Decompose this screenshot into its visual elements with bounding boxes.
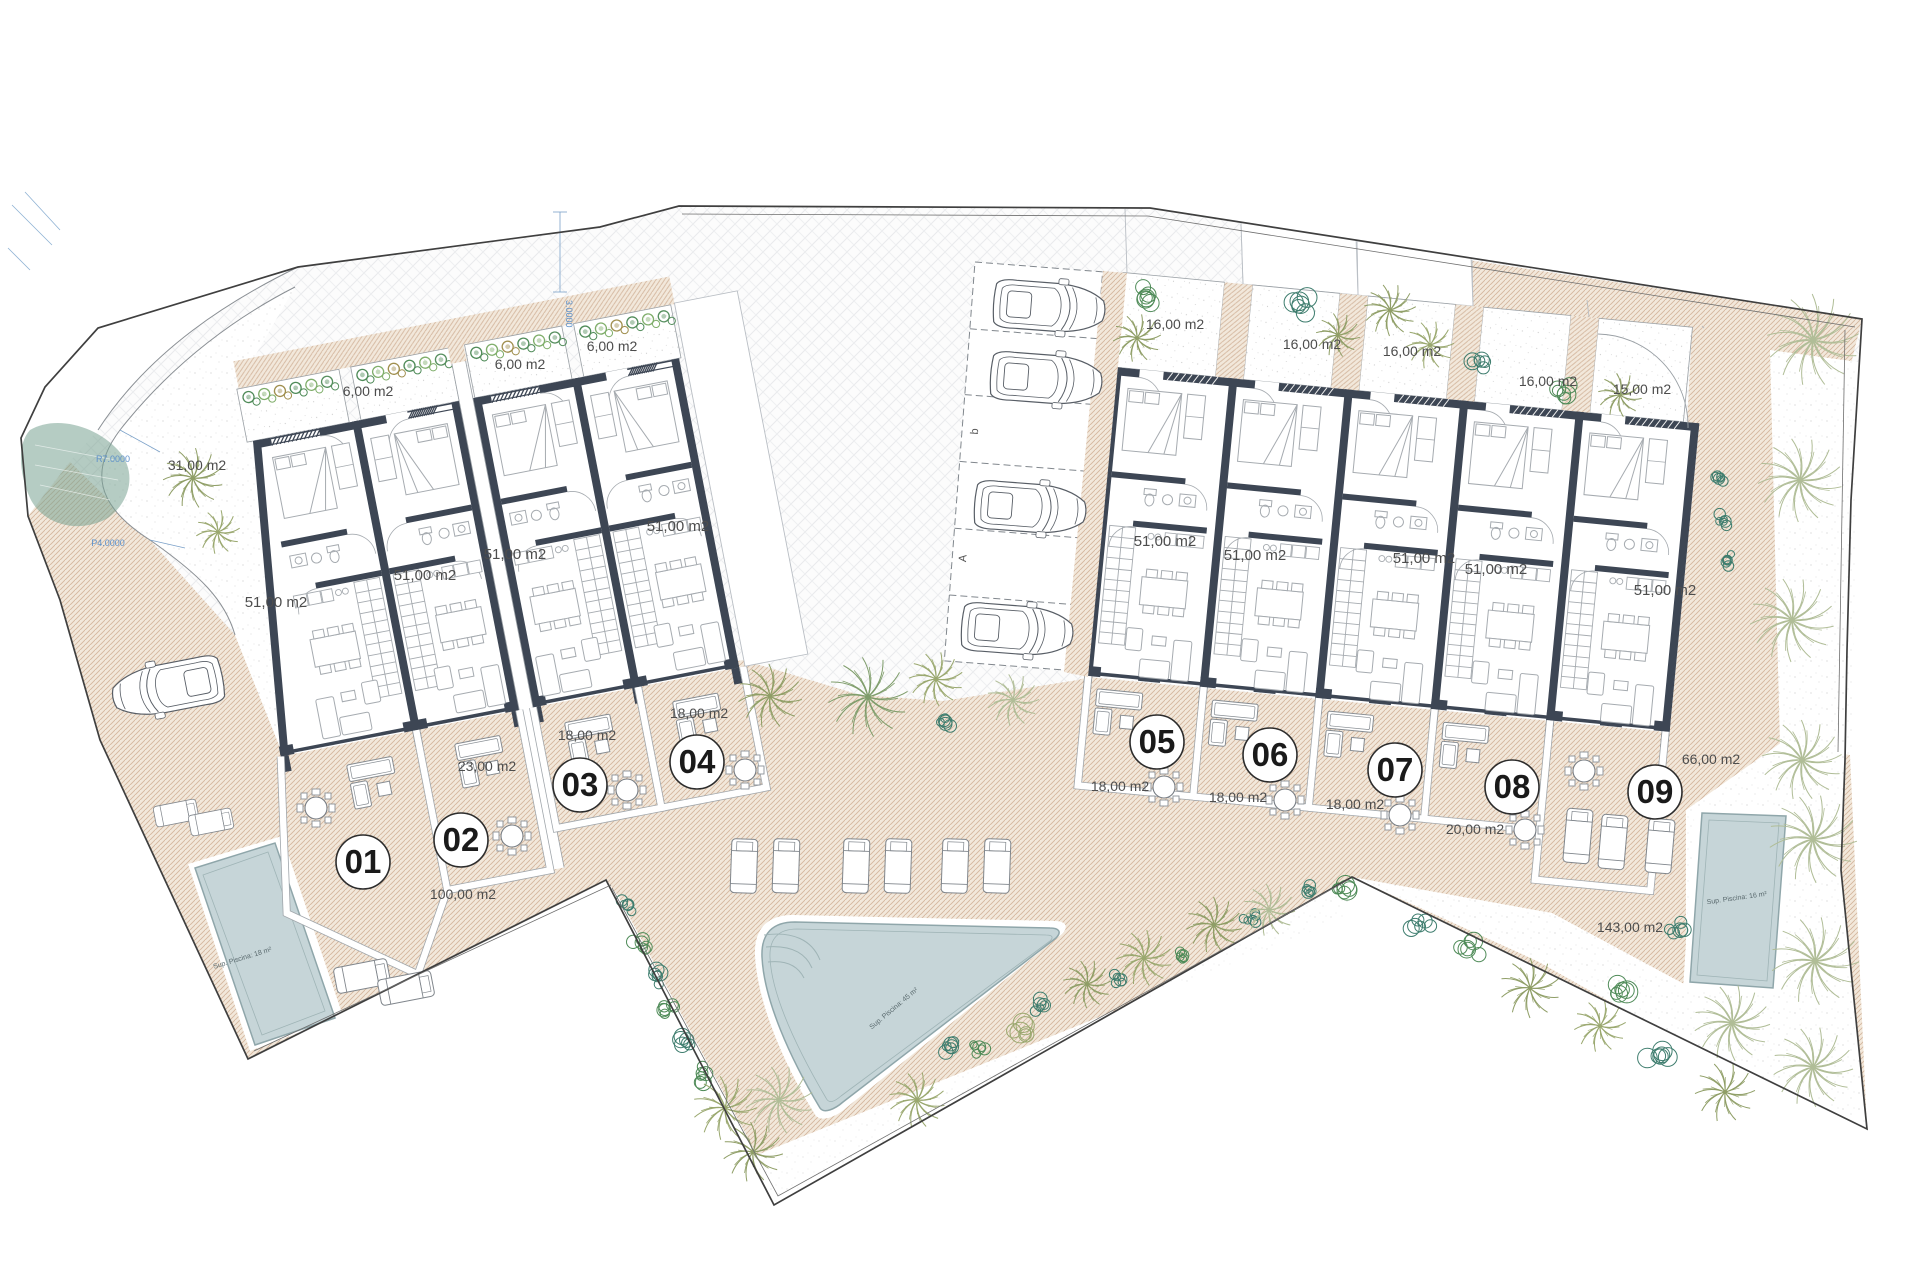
svg-text:51,00 m2: 51,00 m2	[1393, 550, 1456, 567]
svg-text:01: 01	[345, 843, 382, 880]
svg-text:51,00 m2: 51,00 m2	[484, 546, 547, 563]
svg-text:04: 04	[679, 743, 716, 780]
svg-text:16,00 m2: 16,00 m2	[1519, 373, 1578, 389]
svg-text:6,00 m2: 6,00 m2	[495, 356, 546, 372]
svg-text:09: 09	[1637, 773, 1674, 810]
svg-text:15,00 m2: 15,00 m2	[1613, 381, 1672, 397]
svg-text:07: 07	[1377, 751, 1414, 788]
svg-text:R7.0000: R7.0000	[96, 454, 130, 464]
svg-text:51,00 m2: 51,00 m2	[394, 567, 457, 584]
svg-text:66,00 m2: 66,00 m2	[1682, 751, 1741, 767]
svg-text:06: 06	[1252, 736, 1289, 773]
svg-text:16,00 m2: 16,00 m2	[1383, 343, 1442, 359]
svg-text:16,00 m2: 16,00 m2	[1283, 336, 1342, 352]
svg-text:18,00 m2: 18,00 m2	[1091, 778, 1150, 794]
svg-text:05: 05	[1139, 723, 1176, 760]
svg-text:51,00 m2: 51,00 m2	[647, 518, 710, 535]
svg-text:51,00 m2: 51,00 m2	[1134, 533, 1197, 550]
svg-text:20,00 m2: 20,00 m2	[1446, 821, 1505, 837]
svg-text:31,00 m2: 31,00 m2	[168, 457, 227, 473]
svg-text:51,00 m2: 51,00 m2	[1224, 547, 1287, 564]
svg-text:b: b	[969, 428, 981, 435]
svg-text:6,00 m2: 6,00 m2	[343, 383, 394, 399]
svg-text:16,00 m2: 16,00 m2	[1146, 316, 1205, 332]
svg-text:18,00 m2: 18,00 m2	[670, 705, 729, 721]
svg-text:18,00 m2: 18,00 m2	[1326, 796, 1385, 812]
svg-text:P4.0000: P4.0000	[91, 538, 125, 548]
svg-text:18,00 m2: 18,00 m2	[558, 727, 617, 743]
svg-text:02: 02	[443, 821, 480, 858]
svg-text:143,00 m2: 143,00 m2	[1597, 919, 1663, 935]
svg-text:51,00 m2: 51,00 m2	[245, 594, 308, 611]
svg-text:03: 03	[562, 766, 599, 803]
svg-text:6,00 m2: 6,00 m2	[587, 338, 638, 354]
svg-text:100,00 m2: 100,00 m2	[430, 886, 496, 902]
svg-text:23,00 m2: 23,00 m2	[458, 758, 517, 774]
svg-text:51,00 m2: 51,00 m2	[1465, 561, 1528, 578]
svg-text:18,00 m2: 18,00 m2	[1209, 789, 1268, 805]
svg-text:08: 08	[1494, 768, 1531, 805]
svg-text:51,00 m2: 51,00 m2	[1634, 582, 1697, 599]
svg-text:3.0000: 3.0000	[564, 300, 574, 328]
